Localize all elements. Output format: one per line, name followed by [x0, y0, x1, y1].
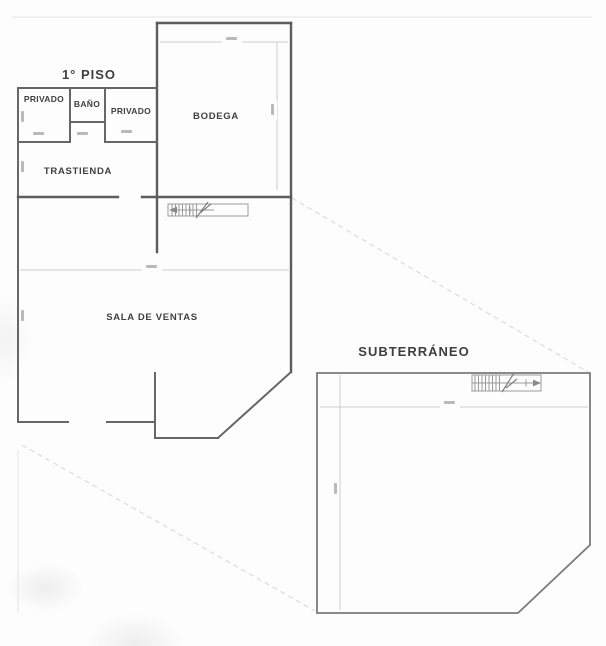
- room-label-bano: BAÑO: [74, 99, 100, 109]
- dimension-mark: [226, 37, 237, 40]
- dimension-mark: [334, 483, 337, 494]
- wall-diagonal: [218, 372, 291, 438]
- dimension-marks: [21, 36, 277, 321]
- basement-title: SUBTERRÁNEO: [358, 344, 469, 359]
- staircase-icon: [168, 202, 248, 218]
- dimension-mark: [33, 132, 44, 135]
- room-label-privado-right: PRIVADO: [111, 106, 151, 116]
- dimension-mark: [146, 265, 157, 268]
- dimension-lines: [18, 42, 289, 612]
- room-label-bodega: BODEGA: [193, 111, 239, 122]
- dimension-marks: [330, 400, 460, 499]
- dimension-mark: [121, 130, 132, 133]
- dimension-mark: [21, 310, 24, 321]
- dimension-mark: [21, 111, 24, 122]
- dimension-lines: [320, 375, 588, 610]
- room-label-privado-left: PRIVADO: [24, 94, 64, 104]
- staircase-icon: [472, 373, 541, 392]
- projection-line-lower: [22, 445, 315, 611]
- dimension-mark: [444, 401, 455, 404]
- floor-plan-svg: 1° PISO PRIVADO BAÑO PRIVADO BODEGA TRAS…: [0, 0, 606, 646]
- projection-lines: [22, 198, 588, 611]
- dimension-mark: [271, 104, 274, 115]
- first-floor-walls: [18, 23, 291, 438]
- dimension-mark: [21, 161, 24, 172]
- first-floor-title: 1° PISO: [62, 67, 116, 82]
- floor-plan-drawing: 1° PISO PRIVADO BAÑO PRIVADO BODEGA TRAS…: [0, 0, 606, 646]
- room-label-trastienda: TRASTIENDA: [44, 166, 112, 177]
- first-floor-plan: 1° PISO PRIVADO BAÑO PRIVADO BODEGA TRAS…: [18, 23, 291, 612]
- dimension-mark: [77, 132, 88, 135]
- room-label-sala-de-ventas: SALA DE VENTAS: [106, 312, 198, 323]
- basement-plan: SUBTERRÁNEO: [317, 344, 590, 613]
